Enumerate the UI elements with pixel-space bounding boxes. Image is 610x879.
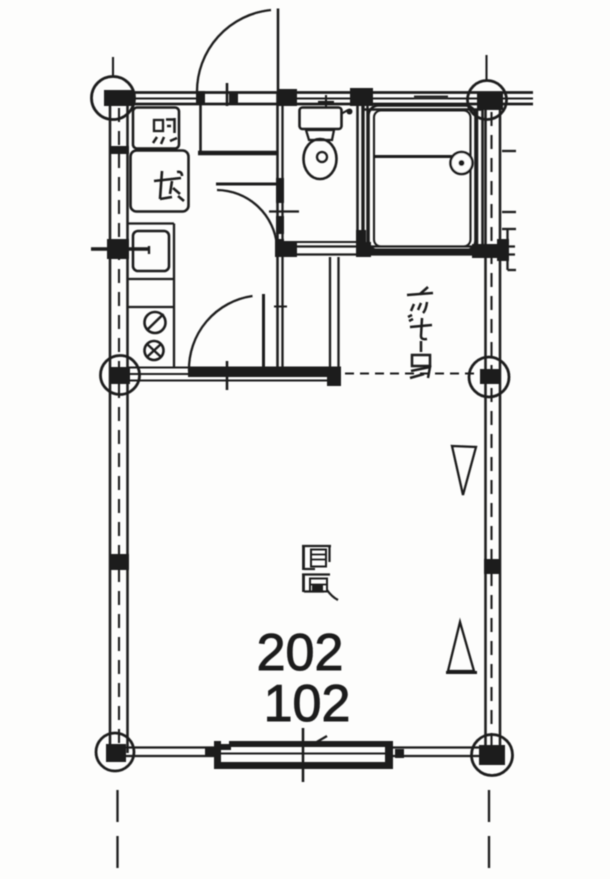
svg-text:202: 202 bbox=[257, 624, 344, 682]
svg-text:102: 102 bbox=[264, 675, 351, 733]
